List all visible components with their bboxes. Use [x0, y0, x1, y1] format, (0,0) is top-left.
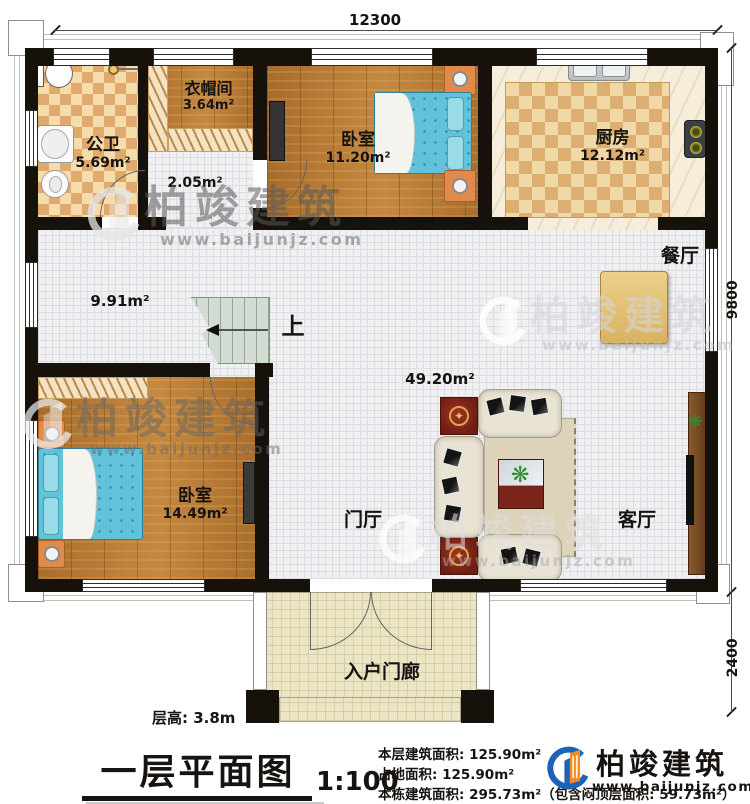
- plant-icon: ❋: [688, 414, 702, 431]
- wall: [478, 217, 528, 230]
- window: [25, 262, 38, 328]
- tv-icon: [686, 455, 694, 525]
- wall: [255, 363, 269, 592]
- window: [311, 48, 433, 66]
- wall: [478, 61, 492, 230]
- lamp-icon: [44, 426, 60, 442]
- wall-exterior: [25, 167, 38, 262]
- pillow: [447, 136, 464, 170]
- cushion: [442, 447, 463, 468]
- window: [536, 48, 648, 66]
- plant-icon: ❋: [511, 465, 529, 487]
- vanity-basin: [41, 129, 69, 159]
- title-underline-thick: [82, 796, 312, 801]
- room-area-great-room: 49.20m²: [398, 371, 482, 388]
- bed-bedroom2: [38, 448, 143, 540]
- room-label-porch: 入户门廊: [320, 662, 444, 683]
- wall-exterior: [667, 579, 718, 592]
- wall-exterior: [432, 579, 520, 592]
- lamp-icon: [452, 178, 468, 194]
- dimension-line-top: [55, 30, 718, 31]
- wall-exterior: [110, 48, 153, 66]
- porch-step: [279, 697, 461, 722]
- sofa-left: [434, 436, 484, 538]
- floor-plan-page: ✦ ✦ ❋ ❋: [0, 0, 750, 804]
- dimension-height-main: 9800: [726, 270, 742, 330]
- window: [153, 48, 234, 66]
- sofa-bottom: [478, 534, 562, 582]
- wall-exterior: [705, 48, 718, 248]
- stove-icon: [684, 120, 706, 158]
- room-area-bedroom1: 11.20m²: [318, 151, 398, 167]
- wall-exterior: [705, 352, 718, 592]
- room-area-main-hall: 9.91m²: [84, 293, 156, 310]
- cushion: [440, 475, 460, 495]
- wardrobe-bedroom2: [243, 462, 255, 524]
- wall: [25, 363, 210, 377]
- stair-direction-line: [218, 329, 268, 331]
- cushion: [508, 394, 527, 413]
- wall-exterior: [25, 328, 38, 420]
- side-table: ✦: [440, 397, 478, 435]
- round-basin-icon: [41, 170, 69, 198]
- nightstand-bedroom2-top: [38, 420, 65, 448]
- stairs-up-label: 上: [278, 315, 308, 341]
- porch-floor: [253, 592, 490, 710]
- cushion: [485, 396, 506, 417]
- wall-exterior: [25, 48, 38, 110]
- wardrobe-bedroom1: [269, 101, 285, 161]
- dimension-width: 12300: [330, 12, 420, 29]
- room-area-small-hall: 2.05m²: [156, 176, 234, 192]
- brand-url: www.baijunjz.com: [592, 780, 748, 795]
- room-label-bedroom2: 卧室: [155, 487, 235, 506]
- porch-side-wall-right: [476, 592, 490, 690]
- faucet-stem: [118, 68, 138, 70]
- vanity-sink-icon: [37, 125, 74, 163]
- cloakroom-rod-left: [148, 61, 168, 152]
- bed-sheet: [63, 449, 97, 539]
- porch-column-right: [461, 690, 494, 723]
- porch-side-wall-left: [253, 592, 267, 690]
- room-label-foyer: 门厅: [333, 510, 393, 531]
- room-area-bathroom: 5.69m²: [70, 156, 136, 172]
- burner-top: [690, 126, 702, 138]
- floor-height-note: 层高: 3.8m: [152, 710, 272, 727]
- cloakroom-rod-bottom: [168, 128, 253, 152]
- sofa-top: [478, 389, 562, 438]
- room-area-kitchen: 12.12m²: [570, 149, 655, 165]
- cushion: [530, 397, 550, 417]
- lamp-icon: [452, 71, 468, 87]
- brand-logo-icon: [546, 746, 592, 792]
- lamp-icon: [44, 546, 60, 562]
- nightstand-bedroom2-bottom: [38, 540, 65, 568]
- wall: [140, 217, 166, 230]
- pillow: [43, 497, 59, 535]
- plan-scale: 1:100: [316, 768, 386, 797]
- room-label-cloakroom: 衣帽间: [166, 80, 251, 98]
- wall: [253, 61, 267, 160]
- room-label-dining: 餐厅: [650, 246, 710, 267]
- pillow: [43, 454, 59, 492]
- closet-rod-bedroom2: [38, 377, 148, 399]
- dimension-height-porch: 2400: [726, 628, 742, 688]
- burner-bottom: [690, 142, 702, 154]
- cushion: [521, 547, 542, 568]
- brand-name: 柏竣建筑: [596, 748, 746, 780]
- wall-exterior: [25, 579, 82, 592]
- room-label-bedroom1: 卧室: [318, 131, 398, 150]
- wall-exterior: [234, 48, 311, 66]
- nightstand-bedroom1-bottom: [444, 170, 476, 202]
- pillow: [447, 97, 464, 131]
- window: [25, 420, 38, 537]
- wall-exterior: [205, 579, 310, 592]
- compass-ornament-icon: ✦: [449, 406, 469, 426]
- cushion: [443, 504, 463, 524]
- room-area-bedroom2: 14.49m²: [155, 507, 235, 523]
- side-table: ✦: [440, 537, 478, 575]
- room-label-bathroom: 公卫: [70, 136, 136, 155]
- compass-ornament-icon: ✦: [449, 546, 469, 566]
- window: [53, 48, 110, 66]
- room-label-living: 客厅: [607, 510, 667, 531]
- room-area-cloakroom: 3.64m²: [166, 99, 251, 114]
- room-label-kitchen: 厨房: [570, 129, 655, 148]
- window: [520, 579, 667, 592]
- cushion: [499, 545, 519, 565]
- round-basin-inner: [49, 176, 62, 193]
- window: [82, 579, 205, 592]
- coffee-table: ❋: [498, 459, 544, 509]
- stair-arrow-icon: [206, 324, 219, 336]
- nightstand-bedroom1-top: [444, 63, 476, 95]
- dining-table: [600, 271, 668, 344]
- wall: [253, 217, 478, 230]
- plan-title: 一层平面图: [82, 753, 314, 793]
- wall-exterior: [433, 48, 536, 66]
- window: [25, 110, 38, 167]
